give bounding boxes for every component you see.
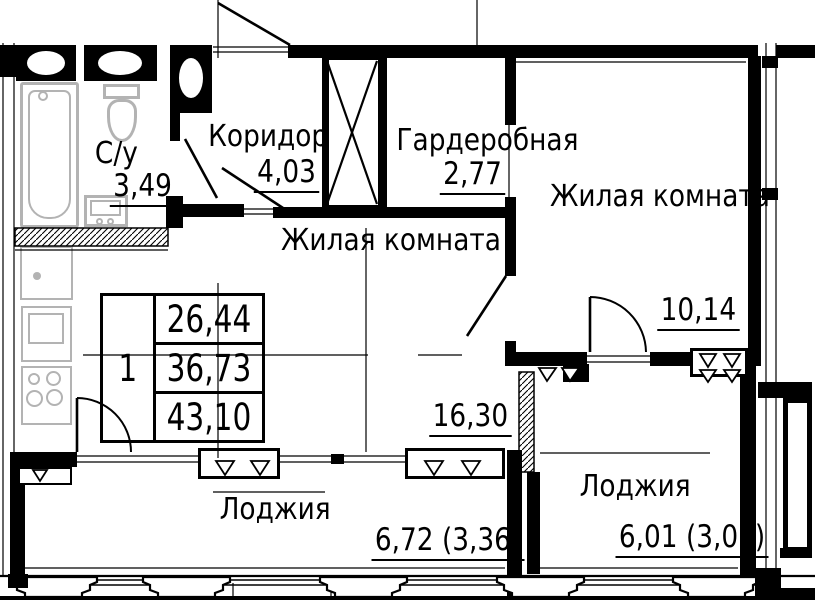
bathtub-drain [38, 91, 48, 101]
wall [273, 207, 515, 218]
faucet [107, 218, 114, 225]
room-label-loggia-left: Лоджия [212, 494, 330, 526]
stove-burner [26, 390, 43, 407]
room-label-loggia-right: Лоджия [572, 471, 686, 503]
hatched-partition [15, 228, 168, 246]
facade-corner [755, 568, 781, 598]
wall [527, 472, 540, 574]
bathtub-inner [28, 90, 71, 219]
vent-hole [179, 58, 203, 98]
kitchen-sink-drain [33, 272, 41, 280]
facade-base [0, 596, 815, 600]
vent-shaft [84, 45, 157, 81]
room-area-corridor: 4,03 [248, 156, 324, 193]
vent-hole [98, 51, 142, 75]
room-label-wardrobe: Гардеробная [384, 125, 566, 157]
stove-burner [28, 373, 40, 385]
window [690, 348, 748, 377]
stamp-living-area: 26,44 [167, 298, 252, 341]
room-label-bathroom: С/у [80, 138, 152, 170]
stove-burner [46, 389, 63, 406]
wall [0, 45, 16, 77]
room-door-leaf [467, 276, 506, 336]
wall [780, 548, 812, 558]
closet [322, 58, 380, 207]
stamp-area-cell: 36,73 [156, 345, 262, 394]
wall [182, 204, 244, 217]
room-area-living-right: 10,14 [648, 294, 748, 331]
kitchen-counter-top [28, 313, 64, 344]
room-area-loggia-left: 6,72 (3,36) [358, 524, 506, 561]
room-label-corridor: Коридор [200, 121, 324, 153]
facade-corner [781, 588, 815, 600]
stove-burner [46, 371, 61, 386]
wall [783, 398, 812, 552]
room-label-living-main: Жилая комната [266, 225, 494, 257]
vent-hole [27, 51, 65, 75]
toilet [103, 84, 140, 99]
kitchen-sink [20, 246, 73, 300]
window-mullion [331, 454, 344, 464]
window [18, 467, 72, 485]
facade-plinth [143, 577, 230, 597]
stamp-total-area-cell: 43,10 [156, 394, 262, 440]
stamp-rooms-count-cell: 1 [103, 296, 156, 440]
stamp-areas-column: 26,44 36,73 43,10 [156, 296, 262, 440]
apartment-stamp: 1 26,44 36,73 43,10 [100, 293, 265, 443]
sill-mark [539, 368, 556, 381]
wall [758, 382, 812, 398]
room-area-loggia-right: 6,01 (3,01) [602, 521, 744, 558]
wall [650, 352, 695, 366]
wall [776, 45, 815, 58]
room-label-living-right: Жилая комната [535, 181, 753, 213]
window [405, 448, 505, 479]
room-area-wardrobe: 2,77 [434, 158, 512, 195]
stamp-living-area-cell: 26,44 [156, 296, 262, 345]
window [198, 448, 280, 479]
facade-plinth [320, 577, 407, 597]
faucet [96, 218, 103, 225]
facade-plinth [673, 577, 760, 597]
wall [505, 58, 516, 125]
wall [505, 197, 516, 276]
vent-shaft [16, 45, 76, 81]
facade-corner [8, 574, 28, 588]
wall [746, 352, 761, 366]
stamp-area: 36,73 [167, 347, 252, 390]
floor-plan: С/у 3,49 Коридор 4,03 Гардеробная 2,77 Ж… [0, 0, 815, 600]
stamp-rooms-count: 1 [119, 347, 138, 390]
balcony-door-arc [590, 297, 646, 352]
facade-plinth [10, 577, 97, 597]
wall [15, 452, 77, 467]
wall [563, 364, 589, 382]
room-area-living-main: 16,30 [422, 400, 502, 437]
wall [762, 56, 778, 68]
entrance-door-leaf [218, 3, 290, 45]
wall [288, 45, 758, 58]
room-area-bathroom: 3,49 [104, 170, 178, 207]
vent-shaft [170, 45, 212, 113]
stamp-total-area: 43,10 [167, 396, 252, 439]
wall [170, 113, 180, 141]
